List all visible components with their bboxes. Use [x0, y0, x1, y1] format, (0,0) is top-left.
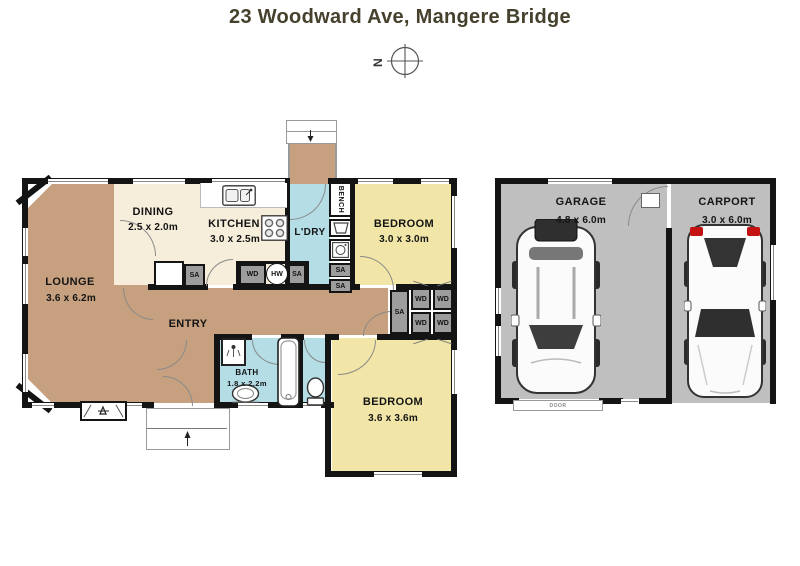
shower-icon: [221, 338, 246, 366]
washing-machine: [329, 239, 352, 261]
compass-icon: N: [372, 42, 428, 80]
closet-sa: SA: [390, 290, 409, 334]
label-kitchen: KITCHEN: [208, 218, 260, 231]
laundry-tub: [329, 219, 352, 237]
arrow-down-icon: [306, 130, 315, 142]
window: [358, 179, 393, 184]
wd-label: WD: [415, 296, 427, 303]
closet-wd: WD: [433, 312, 453, 334]
label-dining: DINING: [133, 206, 174, 219]
window: [32, 403, 54, 408]
window: [23, 354, 28, 392]
hot-water-cylinder: HW: [266, 263, 288, 285]
label-entry: ENTRY: [169, 318, 208, 331]
compass: N: [372, 42, 428, 80]
fireplace-icon: [82, 403, 125, 419]
wd-label: WD: [437, 296, 449, 303]
window: [621, 399, 638, 404]
closet-wd: WD: [411, 288, 431, 310]
label-carport: CARPORT: [698, 196, 755, 209]
page-title: 23 Woodward Ave, Mangere Bridge: [0, 6, 800, 29]
tub-icon: [333, 222, 349, 234]
kitchen-sink-icon: [222, 185, 256, 206]
sa-label: SA: [292, 271, 302, 278]
closet-wd: WD: [411, 312, 431, 334]
wall: [639, 398, 667, 404]
window: [48, 179, 108, 184]
hw-label: HW: [271, 271, 283, 278]
wall: [214, 340, 220, 402]
closet-wd: WD: [433, 288, 453, 310]
compass-north-letter: N: [372, 58, 385, 67]
label-bath-dims: 1.8 x 2.2m: [227, 379, 267, 388]
window: [374, 472, 422, 477]
arrow-up-icon: [183, 431, 192, 446]
label-carport-dims: 3.0 x 6.0m: [702, 214, 752, 227]
laundry-bench: BENCH: [329, 182, 352, 217]
dining-closet: [154, 261, 184, 287]
window: [452, 350, 457, 394]
wall: [352, 284, 360, 290]
label-dining-dims: 2.5 x 2.0m: [128, 221, 178, 234]
label-bath: BATH: [235, 368, 258, 378]
wall: [306, 261, 309, 287]
window: [23, 264, 28, 304]
label-bedroom2-dims: 3.6 x 3.6m: [368, 412, 418, 425]
closet-wd: WD: [239, 264, 266, 285]
stove-icon: [261, 215, 288, 241]
label-garage: GARAGE: [556, 196, 607, 209]
label-lounge: LOUNGE: [45, 276, 94, 289]
label-bedroom1-dims: 3.0 x 3.0m: [379, 233, 429, 246]
door-leaf: [641, 193, 660, 208]
bathtub-icon: [277, 337, 300, 407]
label-lounge-dims: 3.6 x 6.2m: [46, 292, 96, 305]
wall: [495, 178, 776, 184]
window: [421, 179, 449, 184]
garage-door: DOOR: [513, 400, 603, 411]
label-bedroom2: BEDROOM: [363, 396, 423, 409]
car-garage: [511, 219, 601, 399]
wd-label: WD: [247, 271, 259, 278]
closet-sa: SA: [288, 264, 306, 285]
window: [126, 403, 142, 408]
sa-label: SA: [190, 272, 200, 279]
wd-label: WD: [415, 320, 427, 327]
label-garage-dims: 4.8 x 6.0m: [556, 214, 606, 227]
window: [23, 228, 28, 256]
window: [496, 326, 501, 356]
closet-sa: SA: [184, 264, 205, 287]
floorplan-canvas: 23 Woodward Ave, Mangere Bridge N: [0, 0, 800, 566]
window: [548, 179, 612, 184]
closet-sa: SA: [329, 279, 352, 293]
bench-label: BENCH: [337, 186, 344, 213]
sa-label: SA: [336, 267, 346, 274]
sa-label: SA: [336, 283, 346, 290]
label-laundry: L'DRY: [294, 226, 325, 239]
window: [133, 179, 185, 184]
window: [771, 245, 776, 300]
wd-label: WD: [437, 320, 449, 327]
window: [452, 196, 457, 248]
fireplace: [80, 401, 127, 421]
step-divider: [147, 428, 227, 429]
car-carport: [684, 223, 766, 399]
label-bedroom1: BEDROOM: [374, 218, 434, 231]
closet-sa: SA: [329, 263, 352, 277]
wall: [666, 228, 672, 404]
window: [496, 288, 501, 314]
washer-icon: [332, 242, 349, 258]
garage-door-label: DOOR: [550, 403, 567, 409]
toilet-icon: [305, 377, 326, 406]
label-kitchen-dims: 3.0 x 2.5m: [210, 233, 260, 246]
sa-label: SA: [395, 309, 405, 316]
